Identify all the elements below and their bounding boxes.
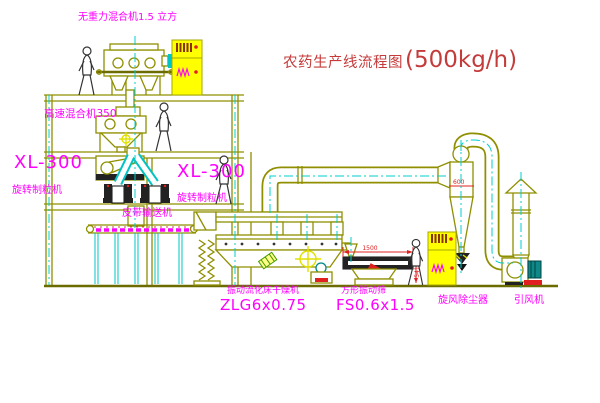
indicator-dot — [194, 45, 198, 49]
title-capacity: (500kg/h) — [405, 47, 517, 73]
cyclone-dim-text: 600 — [453, 179, 465, 186]
induced-draft-fan — [502, 258, 542, 285]
label-granulator-right-name: 旋转制粒机 — [177, 194, 227, 204]
screen-length-dim: 1500 — [362, 245, 377, 252]
control-cabinet-bottom — [428, 232, 456, 285]
label-high-speed-mixer: 高速混合机350 — [44, 109, 117, 120]
label-cyclone: 旋风除尘器 — [438, 296, 488, 306]
vibrating-screen: 1500 541 — [343, 244, 421, 285]
label-dryer-model: ZLG6x0.75 — [220, 298, 307, 313]
label-screen-model: FS0.6x1.5 — [336, 298, 415, 313]
label-granulator-left-name: 旋转制粒机 — [12, 186, 62, 196]
flow-diagram-canvas: 600 — [0, 0, 600, 403]
label-granulator-right-model: XL-300 — [177, 163, 246, 181]
granulator-right-unit — [140, 184, 170, 203]
person-top-floor — [79, 47, 94, 95]
label-fan: 引风机 — [514, 296, 544, 306]
control-cabinet-top — [172, 40, 202, 95]
label-screen-name: 方形振动筛 — [341, 287, 386, 296]
label-top-mixer: 无重力混合机1.5 立方 — [78, 13, 177, 23]
label-belt-conveyor: 皮带输送机 — [122, 209, 172, 219]
person-second-floor — [156, 103, 171, 151]
fluid-bed-dryer — [194, 212, 350, 285]
label-granulator-left-model: XL-300 — [14, 154, 83, 172]
title-text: 农药生产线流程图 — [283, 51, 403, 72]
fan-base — [524, 280, 542, 285]
belt-conveyor — [87, 225, 198, 284]
discharge-cap — [168, 54, 172, 68]
label-dryer-name: 振动流化床干燥机 — [227, 287, 299, 296]
granulator-left-unit — [103, 184, 133, 203]
diagram-title: 农药生产线流程图 (500kg/h) — [283, 47, 517, 73]
